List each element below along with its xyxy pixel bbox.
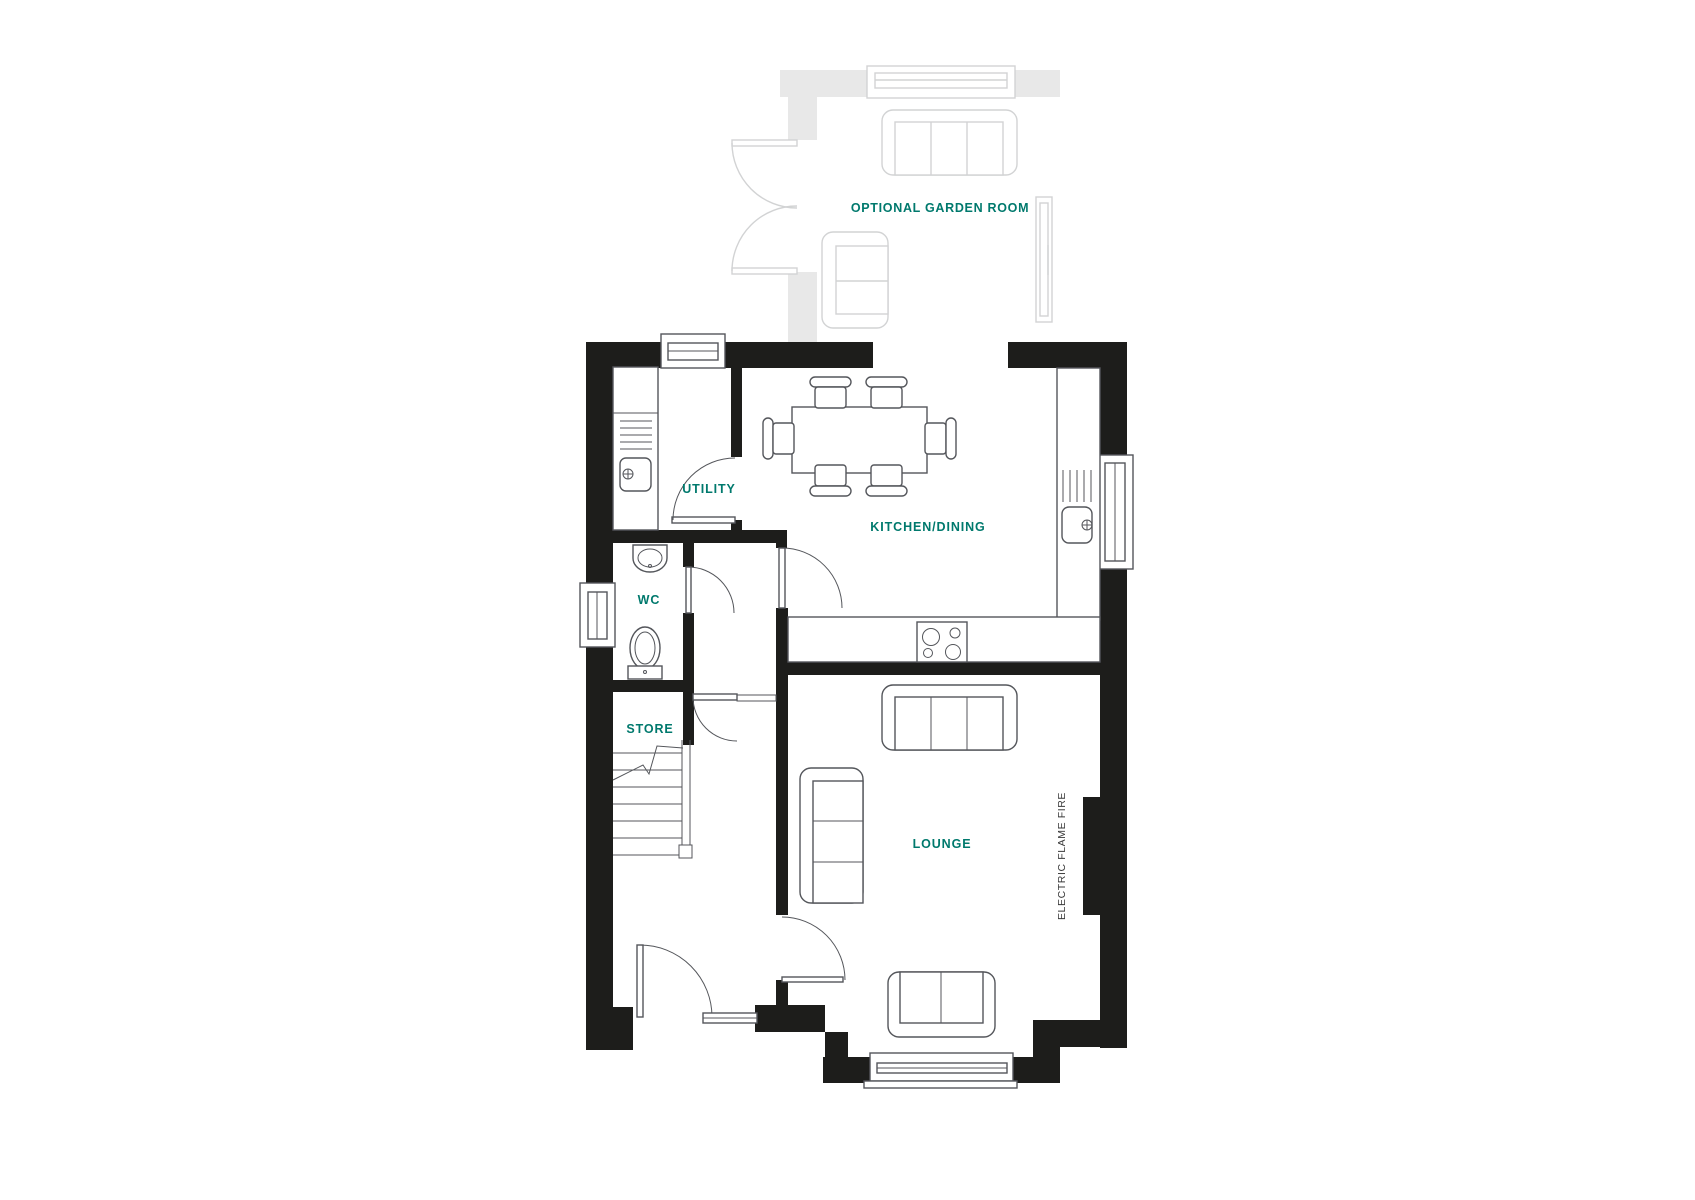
garden-room-side-panel (1036, 197, 1052, 322)
floor-plan-drawing (0, 0, 1695, 1200)
sofa-three-seat-left (800, 768, 863, 903)
garden-room-window (867, 66, 1015, 98)
toilet (628, 627, 662, 679)
kitchen-window (1097, 455, 1133, 569)
dining-chair (763, 418, 794, 459)
kitchen-counter-south (788, 617, 1100, 662)
store-door (693, 694, 737, 741)
sofa-two-seat-bottom (888, 972, 995, 1037)
label-kitchen-dining: KITCHEN/DINING (870, 520, 985, 534)
label-utility: UTILITY (682, 482, 736, 496)
label-wc: WC (638, 593, 661, 607)
bay-window (864, 1053, 1017, 1088)
label-store: STORE (626, 722, 673, 736)
wash-basin (633, 545, 667, 572)
utility-counter (613, 367, 658, 530)
dining-chair (866, 377, 907, 408)
hob (917, 622, 967, 662)
stairs (613, 740, 692, 858)
garden-room-chair (822, 232, 888, 328)
dining-chair (810, 377, 851, 408)
wc-window (580, 583, 615, 647)
newel-post (679, 845, 692, 858)
garden-room-sofa (882, 110, 1017, 175)
fireplace (1083, 797, 1100, 915)
wc-door (686, 567, 734, 613)
sofa-three-seat-top (882, 685, 1017, 750)
dining-chair (866, 465, 907, 496)
dining-chair (925, 418, 956, 459)
store-partition-wall (737, 695, 776, 701)
dining-table (792, 407, 927, 473)
utility-window (661, 334, 725, 368)
front-door (637, 945, 757, 1023)
stair-break-line (613, 746, 683, 780)
label-optional-garden-room: OPTIONAL GARDEN ROOM (851, 201, 1029, 215)
label-electric-flame-fire: ELECTRIC FLAME FIRE (1056, 792, 1068, 920)
garden-room-french-doors (732, 140, 797, 274)
kitchen-sink (1062, 507, 1092, 543)
utility-sink (620, 458, 651, 491)
floor-plan: OPTIONAL GARDEN ROOM UTILITY KITCHEN/DIN… (0, 0, 1695, 1200)
label-lounge: LOUNGE (913, 837, 972, 851)
kitchen-door (779, 548, 842, 608)
dining-chair (810, 465, 851, 496)
kitchen-counter-east (1057, 368, 1100, 620)
lounge-door (782, 917, 845, 982)
